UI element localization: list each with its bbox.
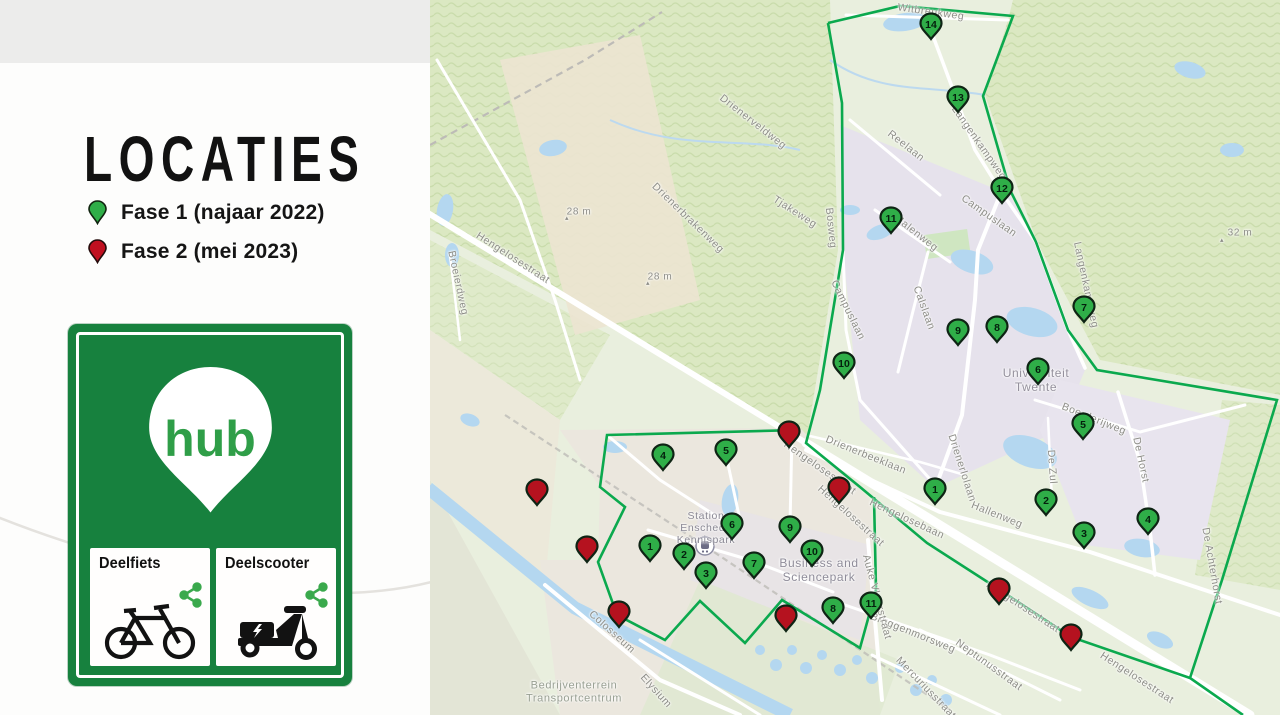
svg-text:2: 2 [681,549,687,561]
map-marker-phase1: 11 [881,208,902,234]
svg-text:4: 4 [1145,514,1151,526]
svg-text:10: 10 [838,358,850,370]
map: WitbreukwegDrienerveldwegTjakewegDriener… [430,0,1280,715]
svg-text:6: 6 [729,519,735,531]
bicycle-icon [102,602,198,660]
map-marker-phase1: 6 [1028,359,1049,385]
service-label: Deelscooter [225,555,309,573]
svg-text:11: 11 [865,598,876,610]
legend-item-fase2: Fase 2 (mei 2023) [88,239,325,264]
map-marker-phase1: 2 [1036,490,1057,516]
svg-text:13: 13 [952,92,964,104]
map-marker-phase1: 2 [674,544,695,570]
svg-text:5: 5 [723,445,729,457]
map-marker-phase1: 7 [744,553,765,579]
map-marker-phase1: 6 [722,514,743,540]
svg-text:6: 6 [1035,364,1041,376]
map-marker-phase2 [829,478,850,504]
map-marker-phase1: 14 [921,14,942,40]
phase1-pin-icon [88,200,107,225]
map-marker-phase1: 10 [802,541,823,567]
legend: Fase 1 (najaar 2022) Fase 2 (mei 2023) [88,200,325,278]
svg-text:3: 3 [1081,528,1087,540]
svg-text:14: 14 [925,19,937,31]
svg-text:8: 8 [830,603,836,615]
map-marker-phase1: 4 [653,445,674,471]
map-marker-phase1: 9 [780,517,801,543]
svg-text:7: 7 [751,558,757,570]
phase2-pin-icon [88,239,107,264]
map-marker-phase1: 9 [948,320,969,346]
service-card-deelfiets: Deelfiets [90,548,210,666]
scooter-icon [232,600,320,660]
map-marker-phase1: 3 [1074,523,1095,549]
svg-text:8: 8 [994,322,1000,334]
map-marker-phase1: 5 [1073,414,1094,440]
legend-label: Fase 2 (mei 2023) [121,240,298,264]
svg-text:7: 7 [1081,302,1087,314]
svg-text:10: 10 [806,546,818,558]
map-marker-phase2 [577,537,598,563]
map-marker-phase2 [989,579,1010,605]
map-marker-phase1: 3 [696,563,717,589]
map-marker-phase1: 11 [861,593,882,619]
page-title: LOCATIES [84,122,365,196]
map-marker-phase1: 12 [992,178,1013,204]
map-marker-phase1: 13 [948,87,969,113]
map-marker-phase1: 5 [716,440,737,466]
svg-text:5: 5 [1080,419,1086,431]
legend-label: Fase 1 (najaar 2022) [121,201,325,225]
map-marker-phase1: 1 [925,479,946,505]
service-card-deelscooter: Deelscooter [216,548,336,666]
map-marker-phase2 [779,422,800,448]
service-label: Deelfiets [99,555,161,573]
top-gray-band [0,0,430,63]
svg-text:11: 11 [885,213,896,225]
map-marker-phase1: 10 [834,353,855,379]
marker-layer: 12345678910111213141234567891011 [430,0,1280,715]
map-marker-phase2 [1061,625,1082,651]
hub-brand: hub [68,410,352,468]
svg-text:4: 4 [660,450,666,462]
legend-item-fase1: Fase 1 (najaar 2022) [88,200,325,225]
map-marker-phase1: 4 [1138,509,1159,535]
svg-text:9: 9 [955,325,961,337]
svg-text:3: 3 [703,568,709,580]
svg-text:2: 2 [1043,495,1049,507]
hub-traffic-sign: hub Deelfiets Deelscooter [68,324,352,686]
map-marker-phase2 [776,606,797,632]
map-marker-phase1: 8 [987,317,1008,343]
svg-text:1: 1 [647,541,653,553]
svg-text:9: 9 [787,522,793,534]
map-marker-phase2 [609,602,630,628]
svg-text:1: 1 [932,484,938,496]
map-marker-phase1: 1 [640,536,661,562]
map-marker-phase2 [527,480,548,506]
map-marker-phase1: 7 [1074,297,1095,323]
svg-text:12: 12 [996,183,1008,195]
info-panel: LOCATIES Fase 1 (najaar 2022) Fase 2 (me… [0,0,430,715]
map-marker-phase1: 8 [823,598,844,624]
